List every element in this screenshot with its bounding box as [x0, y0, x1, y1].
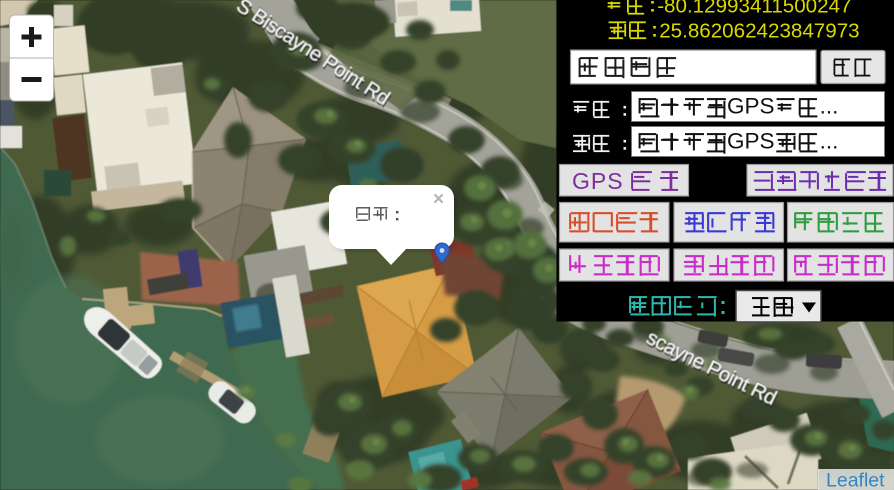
svg-text:×: ×: [433, 189, 444, 210]
svg-text:Leaflet: Leaflet: [826, 470, 885, 490]
svg-text:25.862062423847973: 25.862062423847973: [659, 20, 859, 43]
svg-text:GPS: GPS: [727, 94, 775, 119]
svg-text:GPS: GPS: [572, 168, 624, 194]
svg-text:...: ...: [820, 94, 839, 119]
svg-text:-80.12993411500247: -80.12993411500247: [657, 0, 851, 18]
svg-text:GPS: GPS: [727, 129, 775, 154]
svg-text:...: ...: [820, 129, 839, 154]
